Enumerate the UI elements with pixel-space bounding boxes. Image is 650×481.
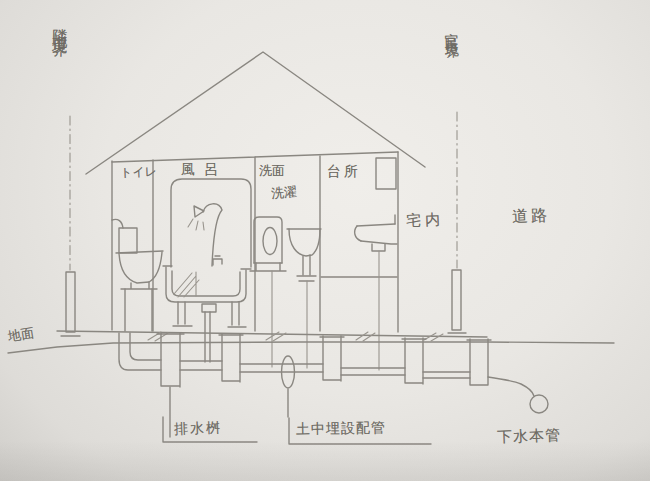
left-boundary-label: 隣地境界 [50, 16, 69, 36]
house-outline [86, 52, 425, 332]
room-label-laundry: 洗濯 [270, 183, 297, 203]
drain-basins [157, 333, 491, 387]
bath-surround-panel [171, 179, 251, 267]
pipe-run-1 [180, 361, 222, 370]
pipe-to-sewer [488, 377, 534, 396]
sketch-drawing [0, 0, 650, 481]
right-boundary-marker [448, 112, 466, 333]
drain-basin-2 [219, 334, 243, 382]
kitchen-vent-box [376, 158, 396, 189]
buried-pipe-label: 土中埋設配管 [296, 419, 386, 439]
left-boundary-marker [61, 116, 80, 336]
sewer-main-pipe [530, 395, 548, 413]
drain-basin-label: 排水桝 [174, 419, 223, 439]
washbasin-fixture [287, 229, 321, 368]
area-label-road: 道路 [512, 205, 551, 227]
underground-pipes [119, 333, 548, 413]
toilet-soil-pipe [119, 333, 161, 370]
roof [86, 52, 425, 174]
room-label-toilet: トイレ [120, 163, 157, 181]
kitchen-sink-fixture [355, 215, 397, 370]
pipe-run-4 [423, 372, 470, 378]
room-label-kitchen: 台所 [327, 163, 361, 181]
bath-faucet-icon [213, 256, 222, 265]
toilet-fixture [112, 219, 163, 331]
pipe-run-3 [341, 368, 405, 375]
area-label-indoor: 宅内 [406, 210, 445, 230]
sewer-main-label: 下水本管 [497, 426, 562, 447]
room-label-bath: 風呂 [181, 161, 227, 179]
sketch-photo: 隣地境界 官民境界 トイレ 風呂 洗面 洗濯 台所 宅内 道路 地面 排水桝 土… [0, 0, 650, 481]
ground-surface-line [8, 342, 614, 353]
room-label-washroom: 洗面 [259, 162, 285, 180]
drain-basin-3 [320, 336, 344, 381]
right-boundary-label: 官民境界 [443, 22, 461, 38]
drain-basin-4 [402, 338, 426, 384]
ground-lines [8, 331, 614, 353]
